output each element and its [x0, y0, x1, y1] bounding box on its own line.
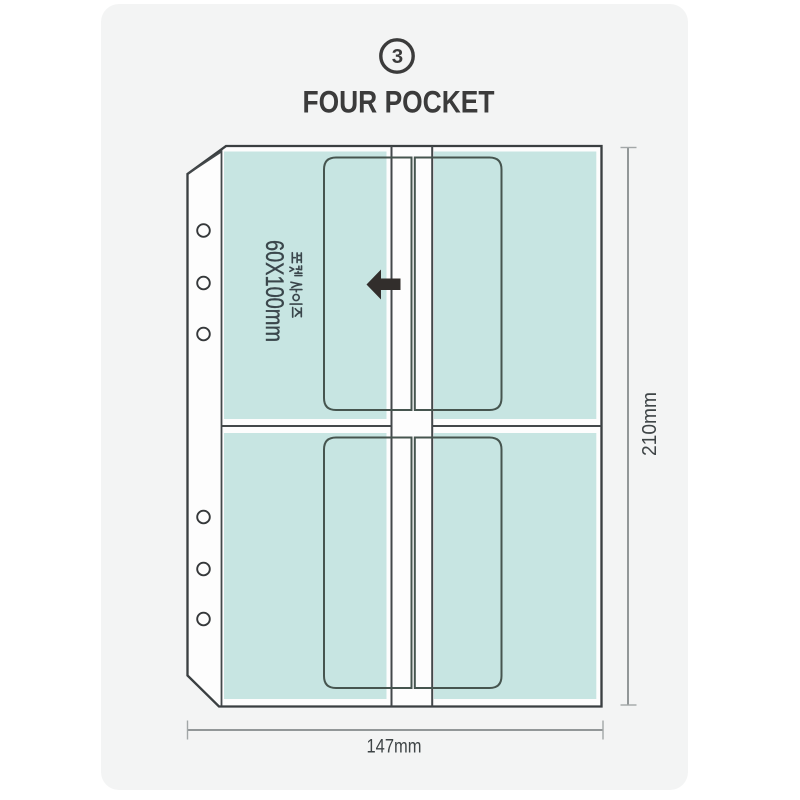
svg-text:60X100mm: 60X100mm: [260, 240, 288, 342]
svg-text:147mm: 147mm: [367, 736, 422, 758]
svg-text:3: 3: [392, 45, 403, 68]
svg-text:FOUR POCKET: FOUR POCKET: [303, 84, 495, 120]
svg-text:210mm: 210mm: [639, 392, 661, 456]
